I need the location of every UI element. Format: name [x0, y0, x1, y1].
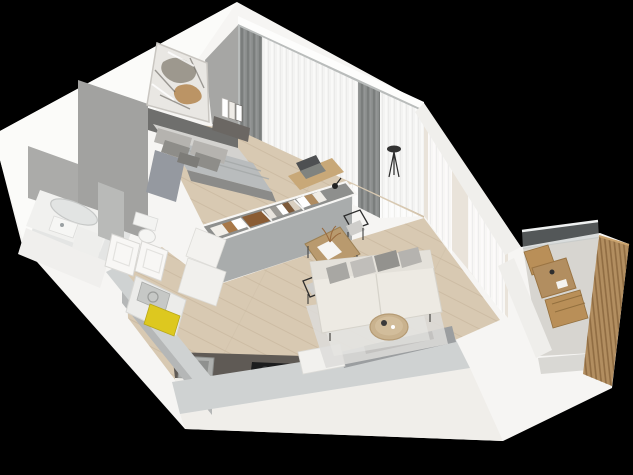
floorplan-svg: [0, 0, 633, 475]
book: [236, 104, 242, 122]
cup: [391, 325, 395, 329]
book: [229, 101, 235, 120]
curtain-drape-panel: [358, 82, 380, 218]
teapot: [381, 320, 387, 326]
bathtub-faucet: [60, 223, 64, 227]
lamp-shade: [387, 146, 401, 153]
coffee-table: [370, 314, 408, 340]
floorplan-render: [0, 0, 633, 475]
book: [222, 98, 228, 118]
table-item: [550, 270, 555, 275]
coffee-table-inner: [375, 317, 403, 336]
